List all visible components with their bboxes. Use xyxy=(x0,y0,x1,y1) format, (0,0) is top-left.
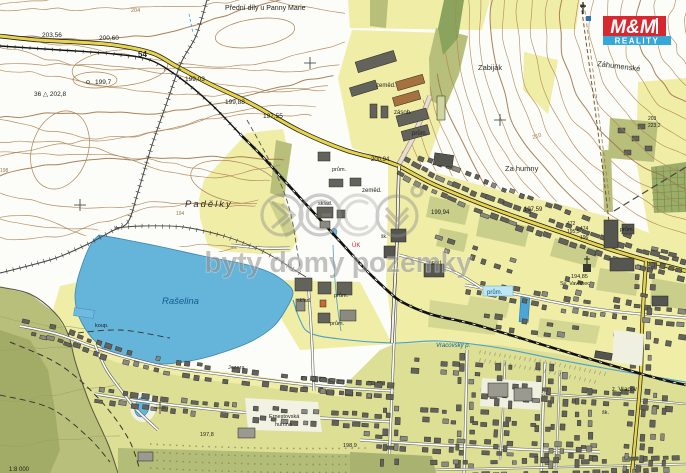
svg-text:200,94: 200,94 xyxy=(371,157,390,163)
svg-text:prům.: prům. xyxy=(620,226,635,233)
svg-text:šk.: šk. xyxy=(381,234,387,240)
svg-text:Přední díly u Panny Marie: Přední díly u Panny Marie xyxy=(225,5,306,12)
svg-text:203: 203 xyxy=(648,116,657,122)
svg-text:Za humny: Za humny xyxy=(505,164,539,173)
svg-text:197,55: 197,55 xyxy=(263,113,283,120)
svg-text:z. Vracov: z. Vracov xyxy=(612,387,637,393)
svg-text:Jezera: Jezera xyxy=(228,365,245,371)
svg-text:196: 196 xyxy=(580,235,589,241)
svg-text:200,60: 200,60 xyxy=(99,35,119,42)
svg-text:Padělky: Padělky xyxy=(185,199,233,210)
svg-text:byty domy pozemky: byty domy pozemky xyxy=(204,247,472,279)
svg-text:šk.: šk. xyxy=(602,410,610,416)
svg-text:195,5: 195,5 xyxy=(567,229,580,235)
svg-text:36 △ 202,8: 36 △ 202,8 xyxy=(34,91,66,98)
svg-text:prům.: prům. xyxy=(334,292,349,299)
svg-text:223,2: 223,2 xyxy=(648,123,661,129)
svg-text:197,8: 197,8 xyxy=(200,432,214,438)
svg-text:Ernestovská: Ernestovská xyxy=(269,414,300,420)
svg-text:1:8 000: 1:8 000 xyxy=(9,467,30,473)
svg-text:Zabiják: Zabiják xyxy=(478,63,502,72)
svg-text:zásob.: zásob. xyxy=(394,110,412,116)
svg-text:474: 474 xyxy=(580,226,589,232)
svg-text:prům.: prům. xyxy=(412,130,428,137)
svg-text:199,03: 199,03 xyxy=(185,76,205,83)
svg-text:194,85: 194,85 xyxy=(571,274,588,280)
svg-text:prům.: prům. xyxy=(330,320,345,327)
svg-text:Sv. Vavřinec: Sv. Vavřinec xyxy=(560,281,590,287)
svg-text:humna: humna xyxy=(275,422,293,428)
svg-text:472: 472 xyxy=(567,221,576,227)
svg-text:M&M: M&M xyxy=(610,17,657,38)
svg-text:zeměd.: zeměd. xyxy=(376,83,396,89)
svg-text:199,94: 199,94 xyxy=(431,210,450,216)
svg-text:54: 54 xyxy=(138,50,147,59)
svg-text:zeměd.: zeměd. xyxy=(362,188,382,194)
svg-text:REALITY: REALITY xyxy=(615,37,660,46)
svg-text:Vracovský p.: Vracovský p. xyxy=(436,343,470,349)
svg-text:199,7: 199,7 xyxy=(95,79,112,86)
svg-text:sklad.: sklad. xyxy=(297,298,312,304)
svg-text:199,88: 199,88 xyxy=(225,99,245,106)
svg-text:197,59: 197,59 xyxy=(524,207,543,213)
svg-text:198,9: 198,9 xyxy=(343,443,357,449)
svg-text:prům.: prům. xyxy=(332,166,347,173)
svg-text:204: 204 xyxy=(131,8,140,14)
svg-text:prům.: prům. xyxy=(487,289,503,296)
svg-text:koup.: koup. xyxy=(95,323,109,329)
svg-text:194: 194 xyxy=(176,211,185,217)
svg-text:203,56: 203,56 xyxy=(42,32,62,39)
svg-text:Rašelina: Rašelina xyxy=(162,296,199,307)
svg-text:198: 198 xyxy=(0,168,9,174)
